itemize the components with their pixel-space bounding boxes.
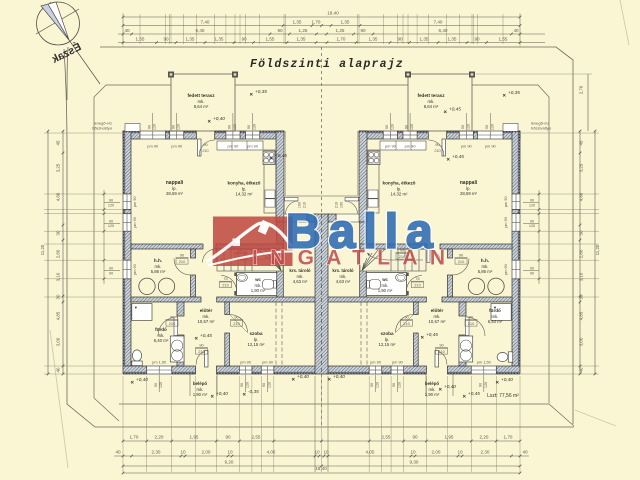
svg-text:90: 90 [474,37,480,42]
svg-text:90: 90 [370,383,374,387]
svg-text:90: 90 [461,125,465,129]
svg-text:10: 10 [314,450,320,455]
svg-text:210: 210 [233,321,240,326]
svg-text:3,25: 3,25 [579,163,584,172]
svg-text:90: 90 [405,125,409,129]
svg-text:90: 90 [360,28,366,33]
svg-text:fürdő: fürdő [155,327,167,332]
svg-text:1,95: 1,95 [445,435,454,440]
svg-text:6,40: 6,40 [439,28,448,33]
svg-text:90: 90 [530,271,534,275]
svg-text:120: 120 [484,382,488,388]
svg-text:9,20: 9,20 [225,460,234,465]
svg-text:210: 210 [458,259,465,264]
svg-text:2,55: 2,55 [382,435,391,440]
svg-text:+0,40: +0,40 [136,377,148,382]
svg-text:pm 90: pm 90 [370,360,382,365]
svg-text:pm 90: pm 90 [133,264,137,275]
svg-text:1,25: 1,25 [299,28,308,33]
svg-text:belépő: belépő [193,381,207,386]
svg-text:1,35: 1,35 [297,37,306,42]
svg-text:1,90 m²: 1,90 m² [251,288,266,293]
svg-text:18,40: 18,40 [327,11,339,16]
svg-text:3,00: 3,00 [579,337,584,346]
svg-text:szoba: szoba [380,331,393,336]
svg-text:2,20: 2,20 [480,435,489,440]
svg-text:konyha, étkező: konyha, étkező [383,181,416,186]
svg-text:40: 40 [522,450,528,455]
svg-text:hőszivattyú: hőszivattyú [531,126,551,131]
svg-text:120: 120 [233,124,237,130]
svg-text:28,69 m²: 28,69 m² [166,191,184,196]
svg-text:45: 45 [56,140,61,145]
svg-text:90: 90 [262,383,266,387]
svg-text:14,32 m²: 14,32 m² [391,192,409,197]
svg-text:mk.: mk. [428,99,435,104]
svg-text:+0,45: +0,45 [426,332,438,337]
svg-text:90: 90 [240,383,244,387]
svg-text:90: 90 [225,435,231,440]
svg-text:120: 120 [253,124,257,130]
svg-text:mk.: mk. [155,264,162,269]
svg-text:2,80: 2,80 [579,249,584,258]
svg-text:pm 90: pm 90 [461,144,473,149]
svg-text:1,35: 1,35 [448,37,457,42]
svg-text:28,69 m²: 28,69 m² [460,191,478,196]
svg-text:4,80: 4,80 [56,192,61,201]
svg-text:pm 90: pm 90 [385,144,397,149]
svg-text:2,20: 2,20 [155,435,164,440]
svg-text:3,00: 3,00 [56,337,61,346]
svg-text:+0,40: +0,40 [333,374,345,379]
svg-text:pm 90: pm 90 [147,144,159,149]
svg-text:1,55: 1,55 [136,37,145,42]
svg-text:5,86 m²: 5,86 m² [478,269,493,274]
svg-text:pm 90: pm 90 [392,360,404,365]
svg-text:210: 210 [414,283,421,288]
svg-text:+0,45: +0,45 [275,153,287,158]
svg-text:90: 90 [385,125,389,129]
svg-text:2,00: 2,00 [432,450,441,455]
svg-text:h.h.: h.h. [154,258,162,263]
svg-text:4,85: 4,85 [56,311,61,320]
svg-text:fürdő: fürdő [489,308,501,313]
svg-text:1,70: 1,70 [504,435,513,440]
svg-text:3,10: 3,10 [56,272,61,281]
svg-text:wc: wc [254,277,261,282]
svg-text:+0,40: +0,40 [501,377,513,382]
svg-text:210: 210 [222,283,229,288]
svg-text:8,64 m²: 8,64 m² [194,104,209,109]
svg-text:pm 90: pm 90 [504,217,508,228]
svg-text:6,40 m²: 6,40 m² [154,338,169,343]
svg-text:1,70: 1,70 [337,37,346,42]
svg-text:konyha, étkező: konyha, étkező [228,181,261,186]
svg-text:90: 90 [530,199,534,203]
svg-text:+0,40: +0,40 [297,374,309,379]
svg-text:pm 1,50: pm 1,50 [477,360,492,365]
svg-text:pm 90: pm 90 [405,144,417,149]
svg-text:30: 30 [579,230,584,235]
svg-text:90: 90 [392,383,396,387]
svg-text:Lszt: 77,56 m²: Lszt: 77,56 m² [487,393,519,399]
svg-text:210: 210 [438,349,445,354]
svg-text:pm 90: pm 90 [133,217,137,228]
svg-text:45: 45 [579,140,584,145]
svg-text:120: 120 [268,382,272,388]
svg-text:90: 90 [203,143,207,147]
svg-text:1,35: 1,35 [420,37,429,42]
svg-text:Földszinti alaprajz: Földszinti alaprajz [250,58,404,71]
svg-text:90: 90 [397,37,403,42]
svg-text:210: 210 [202,149,208,153]
svg-text:40: 40 [124,28,130,33]
svg-text:18,40: 18,40 [315,466,327,471]
svg-text:30: 30 [579,294,584,299]
svg-text:120: 120 [490,124,494,130]
svg-text:40: 40 [513,28,519,33]
svg-text:+0,45: +0,45 [449,107,461,112]
svg-text:2,30: 2,30 [481,450,490,455]
svg-text:90: 90 [109,267,113,271]
svg-text:INGATLAN: INGATLAN [252,247,457,270]
svg-text:90: 90 [109,199,113,203]
svg-text:90: 90 [485,125,489,129]
svg-text:előtér: előtér [431,308,444,313]
svg-text:4,63 m²: 4,63 m² [336,279,351,284]
svg-text:fedett terasz: fedett terasz [417,93,445,98]
svg-text:mk.: mk. [340,274,347,279]
svg-text:210: 210 [403,321,410,326]
svg-text:40: 40 [115,450,121,455]
svg-text:belépő: belépő [425,381,439,386]
svg-text:30: 30 [56,294,61,299]
svg-text:120: 120 [246,382,250,388]
svg-text:90: 90 [228,125,232,129]
svg-text:lp.: lp. [397,186,402,191]
svg-text:4,05: 4,05 [366,450,375,455]
svg-text:10,67 m²: 10,67 m² [198,319,216,324]
svg-text:-0,35: -0,35 [248,389,259,394]
svg-text:12,15 m²: 12,15 m² [379,342,397,347]
svg-text:pm 90: pm 90 [171,144,183,149]
svg-text:6,40: 6,40 [196,28,205,33]
svg-text:2,80: 2,80 [56,249,61,258]
svg-text:2,00: 2,00 [202,450,211,455]
svg-text:4,80: 4,80 [579,192,584,201]
svg-text:pm 1,50: pm 1,50 [152,360,167,365]
svg-text:120: 120 [410,124,414,130]
svg-text:5,86 m²: 5,86 m² [151,269,166,274]
svg-text:lp.: lp. [385,337,390,342]
svg-text:10: 10 [180,450,186,455]
svg-text:pm 90: pm 90 [227,144,239,149]
svg-text:120: 120 [390,124,394,130]
svg-text:1,90 m²: 1,90 m² [425,392,440,397]
svg-text:210: 210 [434,149,440,153]
svg-text:90: 90 [109,219,113,223]
svg-text:90: 90 [154,383,158,387]
svg-text:90: 90 [163,37,169,42]
svg-text:2,55: 2,55 [252,435,261,440]
svg-text:90: 90 [530,219,534,223]
svg-text:lp.: lp. [242,186,247,191]
svg-text:7,40: 7,40 [201,20,210,25]
svg-text:mk.: mk. [429,387,436,392]
svg-text:pm 90: pm 90 [247,144,259,149]
svg-text:120: 120 [376,382,380,388]
svg-text:120: 120 [529,224,535,228]
svg-text:1,55: 1,55 [499,37,508,42]
svg-text:2,70: 2,70 [579,85,584,94]
svg-text:hőszivattyú: hőszivattyú [92,126,112,131]
svg-text:6,40 m²: 6,40 m² [488,319,503,324]
svg-text:11,20: 11,20 [595,244,600,255]
svg-text:1,25: 1,25 [336,28,345,33]
svg-text:4,85: 4,85 [579,311,584,320]
svg-text:1,55: 1,55 [266,37,275,42]
svg-text:2,30: 2,30 [152,450,161,455]
svg-text:120: 120 [159,382,163,388]
svg-text:mk.: mk. [255,283,262,288]
svg-text:4,05: 4,05 [267,450,276,455]
svg-text:lp.: lp. [172,186,177,191]
svg-text:wc: wc [381,277,388,282]
svg-text:90: 90 [247,125,251,129]
svg-text:90: 90 [435,143,439,147]
svg-text:8,64 m²: 8,64 m² [424,104,439,109]
svg-text:90: 90 [530,267,534,271]
svg-text:mk.: mk. [434,314,441,319]
svg-text:120: 120 [108,224,114,228]
svg-text:3,25: 3,25 [56,163,61,172]
svg-text:1,70: 1,70 [130,435,139,440]
svg-text:7,40: 7,40 [434,20,443,25]
svg-text:10,67 m²: 10,67 m² [429,319,447,324]
svg-text:10: 10 [410,450,416,455]
svg-text:40: 40 [56,367,61,372]
svg-text:1,35: 1,35 [186,37,195,42]
svg-text:120: 120 [529,204,535,208]
svg-text:mk.: mk. [158,333,165,338]
svg-text:90: 90 [478,383,482,387]
svg-text:+0,45: +0,45 [468,391,480,396]
svg-text:1,90 m²: 1,90 m² [193,392,208,397]
svg-text:előtér: előtér [200,308,213,313]
svg-text:1,35: 1,35 [341,20,350,25]
svg-text:210: 210 [179,259,186,264]
svg-text:h.h.: h.h. [481,258,489,263]
svg-text:30: 30 [56,230,61,235]
svg-text:pm 90: pm 90 [504,264,508,275]
svg-text:11,20: 11,20 [40,244,45,255]
svg-text:90: 90 [171,125,175,129]
svg-text:4,63 m²: 4,63 m² [293,279,308,284]
svg-text:120: 120 [177,124,181,130]
svg-text:pm 90: pm 90 [262,360,274,365]
svg-text:+0,40: +0,40 [216,391,228,396]
svg-text:pm 90: pm 90 [504,196,508,207]
svg-text:fedett terasz: fedett terasz [187,93,215,98]
svg-text:210: 210 [468,321,475,326]
svg-text:120: 120 [466,124,470,130]
svg-text:+0,35: +0,35 [508,90,520,95]
svg-text:40: 40 [579,367,584,372]
svg-text:14,32 m²: 14,32 m² [236,192,254,197]
svg-text:mk.: mk. [297,274,304,279]
svg-text:+0,40: +0,40 [444,384,456,389]
svg-text:90: 90 [277,28,283,33]
svg-text:pm 90: pm 90 [485,144,497,149]
svg-text:1,35: 1,35 [293,20,302,25]
svg-text:mk.: mk. [197,387,204,392]
svg-text:pm 90: pm 90 [133,196,137,207]
svg-text:+0,35: +0,35 [255,89,267,94]
svg-text:lp.: lp. [254,337,259,342]
svg-text:210: 210 [169,321,176,326]
svg-text:120: 120 [397,382,401,388]
svg-text:mk.: mk. [198,99,205,104]
svg-text:1,70: 1,70 [312,20,321,25]
svg-text:+0,45: +0,45 [452,154,464,159]
svg-text:1,90 m²: 1,90 m² [378,288,393,293]
svg-text:1,35: 1,35 [369,37,378,42]
svg-text:90: 90 [241,37,247,42]
svg-text:1,35: 1,35 [215,37,224,42]
svg-text:210: 210 [198,349,205,354]
svg-text:lp.: lp. [466,186,471,191]
svg-text:90: 90 [109,271,113,275]
svg-text:3,10: 3,10 [579,272,584,281]
svg-text:90: 90 [412,435,418,440]
svg-text:75: 75 [223,276,227,281]
svg-text:mk.: mk. [492,314,499,319]
svg-text:szoba: szoba [249,331,262,336]
svg-text:75: 75 [415,276,419,281]
svg-text:1,95: 1,95 [190,435,199,440]
svg-text:120: 120 [108,204,114,208]
svg-text:120: 120 [153,124,157,130]
svg-text:pm 90: pm 90 [240,360,252,365]
svg-text:9,30: 9,30 [410,460,419,465]
svg-text:+0,45: +0,45 [200,333,212,338]
svg-text:mk.: mk. [382,283,389,288]
svg-text:+0,40: +0,40 [213,116,225,121]
svg-text:10: 10 [457,450,463,455]
svg-text:90: 90 [147,125,151,129]
svg-text:mk.: mk. [482,264,489,269]
svg-text:10: 10 [227,450,233,455]
svg-text:10: 10 [323,450,329,455]
svg-text:12,15 m²: 12,15 m² [248,342,266,347]
svg-text:mk.: mk. [203,314,210,319]
